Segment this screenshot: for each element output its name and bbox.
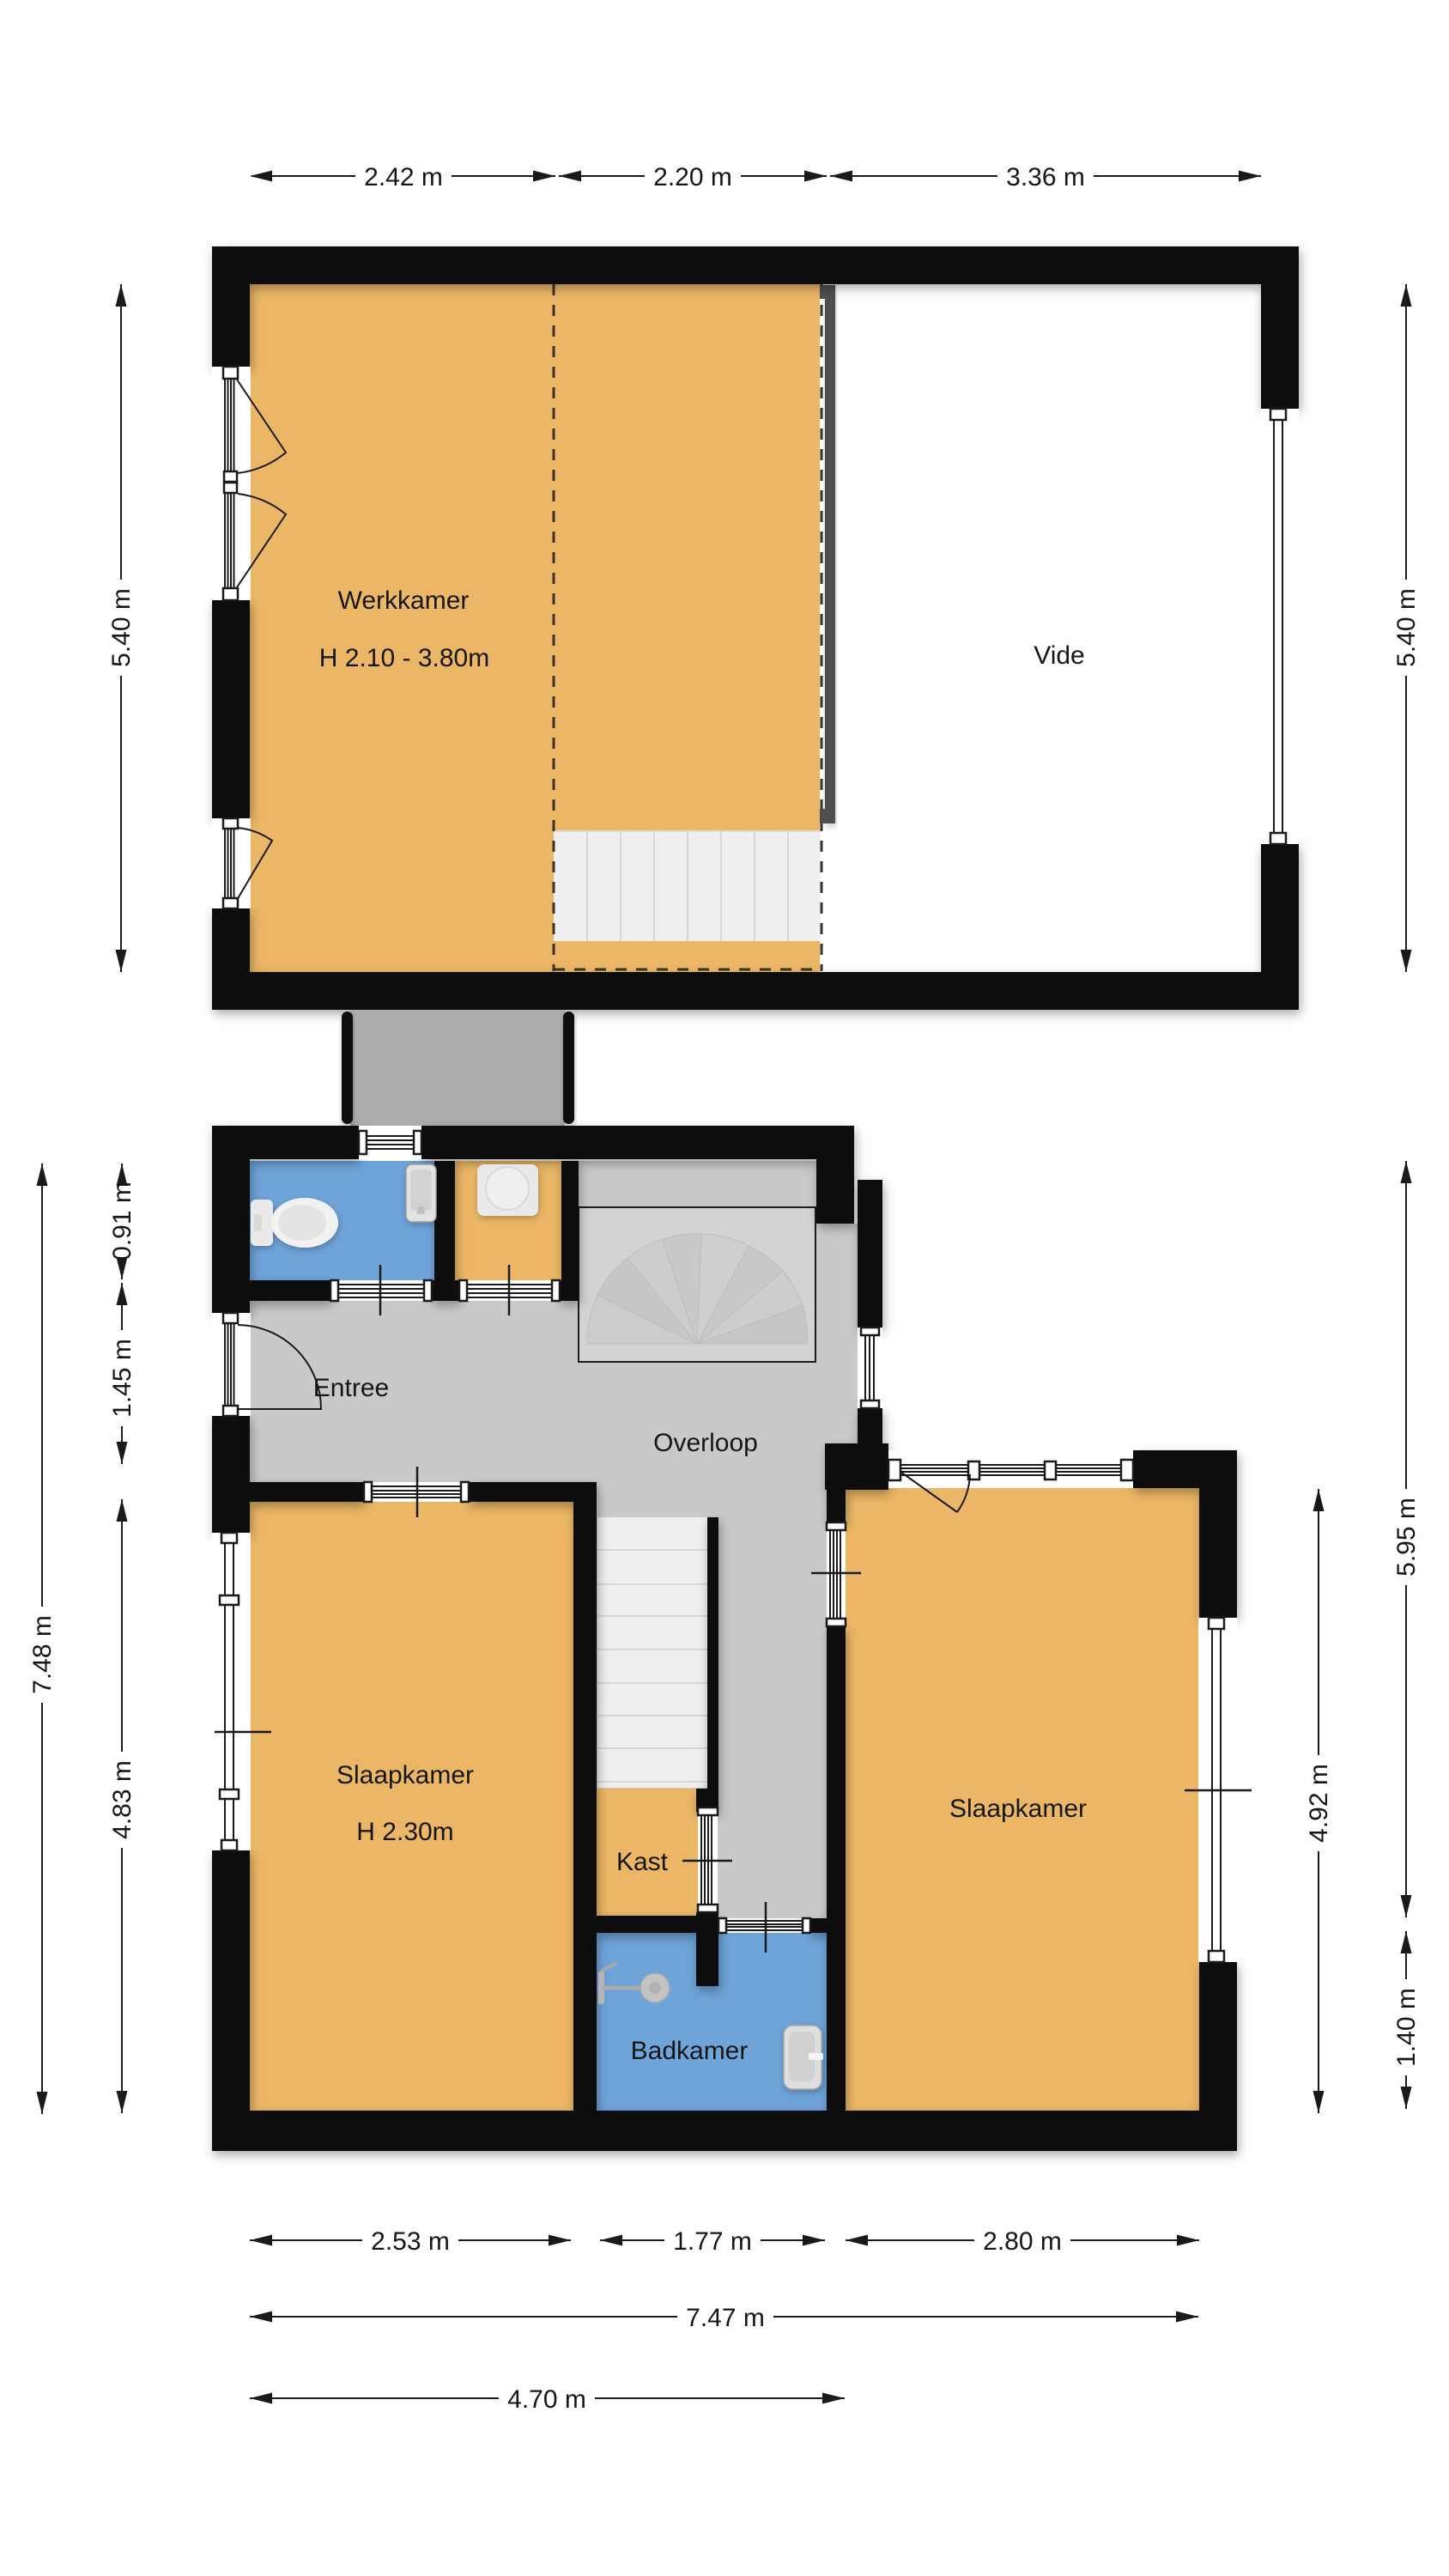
svg-text:4.83 m: 4.83 m [108,1760,136,1839]
svg-text:5.40 m: 5.40 m [107,588,136,667]
svg-text:3.36 m: 3.36 m [1006,163,1085,191]
svg-text:7.47 m: 7.47 m [686,2304,765,2332]
svg-text:Werkkamer: Werkkamer [338,586,470,615]
svg-text:H 2.10 - 3.80m: H 2.10 - 3.80m [319,644,489,672]
svg-text:H 2.30m: H 2.30m [356,1818,453,1846]
svg-text:5.95 m: 5.95 m [1392,1498,1421,1577]
svg-text:2.53 m: 2.53 m [371,2227,450,2256]
svg-text:Overloop: Overloop [653,1429,758,1457]
svg-text:1.45 m: 1.45 m [108,1339,136,1418]
svg-text:0.91 m: 0.91 m [108,1182,136,1261]
svg-text:Entree: Entree [313,1374,389,1402]
svg-text:1.77 m: 1.77 m [673,2227,752,2256]
svg-text:2.80 m: 2.80 m [983,2227,1062,2256]
svg-text:Slaapkamer: Slaapkamer [949,1795,1087,1823]
svg-text:2.20 m: 2.20 m [653,163,732,191]
svg-text:5.40 m: 5.40 m [1392,588,1421,667]
svg-text:4.92 m: 4.92 m [1305,1764,1333,1843]
svg-text:Kast: Kast [616,1848,669,1876]
svg-text:2.42 m: 2.42 m [364,163,443,191]
svg-text:Badkamer: Badkamer [631,2037,749,2065]
svg-text:Vide: Vide [1034,641,1085,670]
svg-text:Slaapkamer: Slaapkamer [336,1761,474,1789]
svg-text:4.70 m: 4.70 m [507,2385,586,2414]
svg-text:1.40 m: 1.40 m [1392,1988,1421,2067]
svg-text:7.48 m: 7.48 m [28,1615,57,1694]
